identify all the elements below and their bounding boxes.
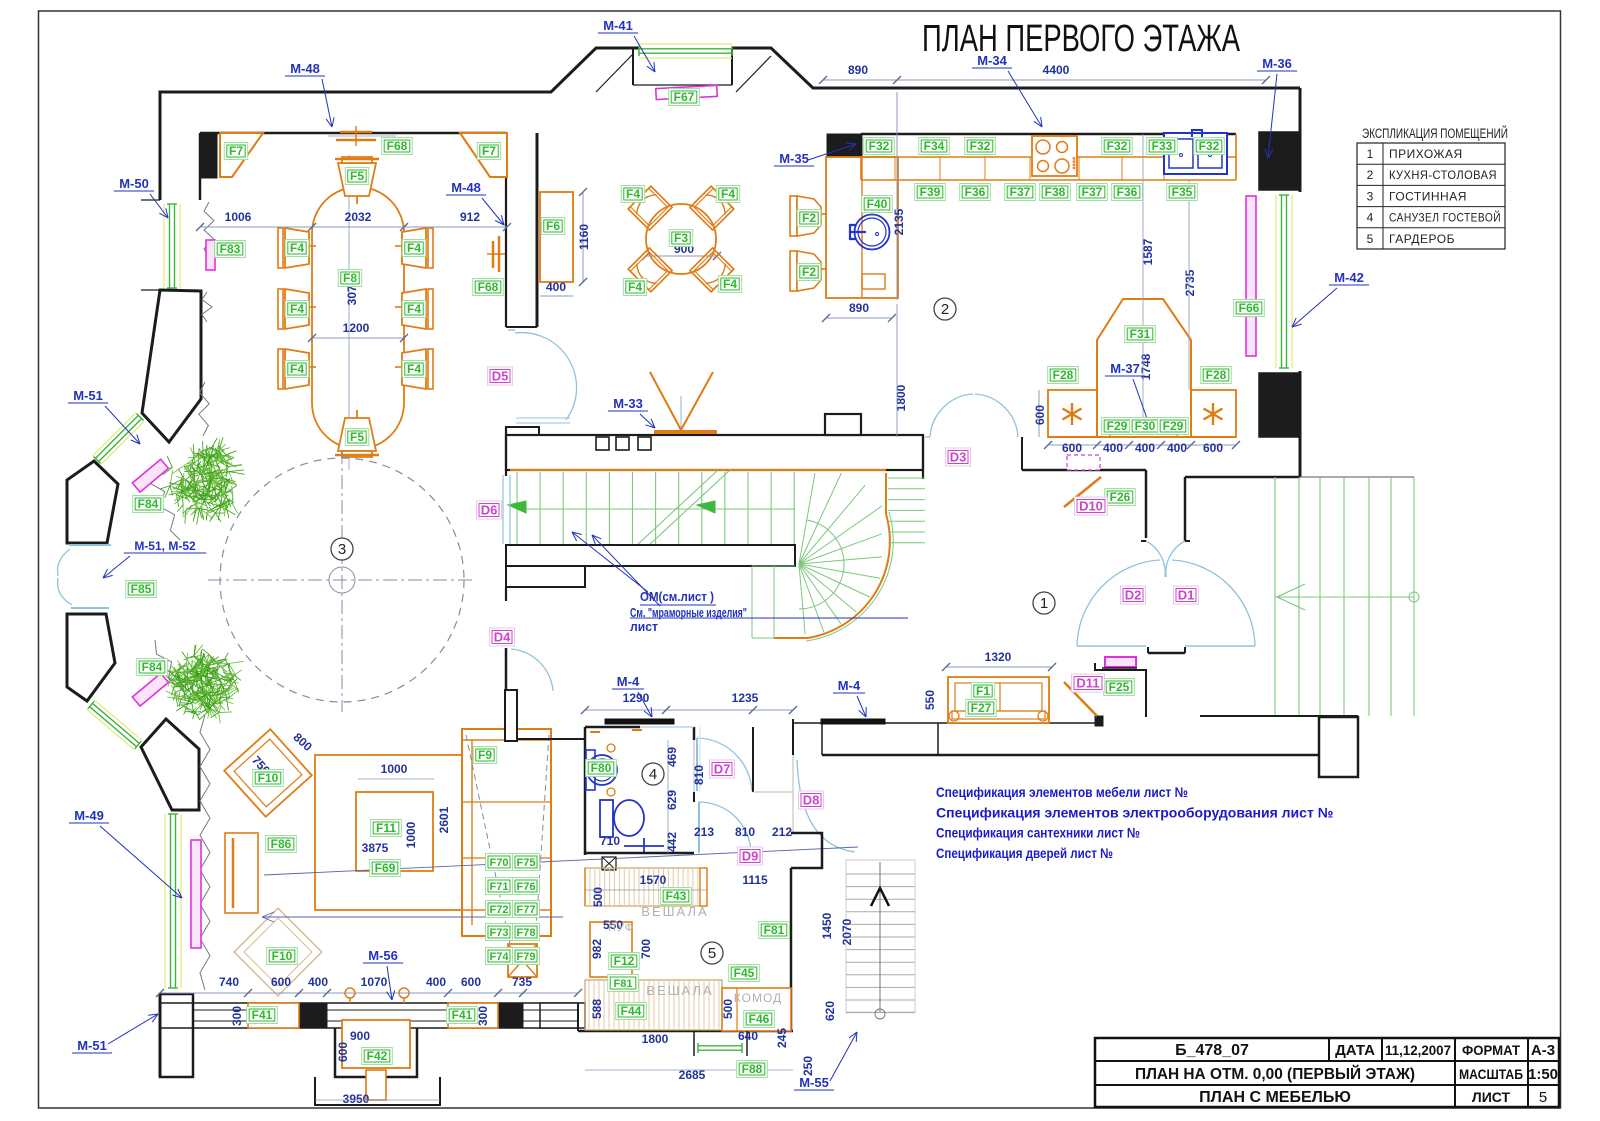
svg-text:ПЛАН НА ОТМ. 0,00 (ПЕРВЫЙ ЭТАЖ: ПЛАН НА ОТМ. 0,00 (ПЕРВЫЙ ЭТАЖ) xyxy=(1135,1064,1415,1083)
svg-text:4400: 4400 xyxy=(1043,63,1070,77)
svg-text:400: 400 xyxy=(308,975,328,989)
svg-text:D6: D6 xyxy=(481,503,498,518)
svg-text:F71: F71 xyxy=(490,881,509,893)
svg-text:F2: F2 xyxy=(802,211,816,225)
svg-text:ПУФ: ПУФ xyxy=(608,922,634,934)
svg-text:F76: F76 xyxy=(517,881,536,893)
svg-text:735: 735 xyxy=(512,975,532,989)
svg-text:F4: F4 xyxy=(290,362,304,376)
svg-text:F32: F32 xyxy=(970,139,991,153)
svg-text:1: 1 xyxy=(1040,595,1048,612)
svg-text:400: 400 xyxy=(546,280,566,294)
svg-text:1115: 1115 xyxy=(742,873,768,887)
svg-text:600: 600 xyxy=(336,1042,350,1062)
svg-text:300: 300 xyxy=(476,1006,490,1026)
svg-text:F32: F32 xyxy=(1107,139,1128,153)
svg-text:Спецификация сантехники лист №: Спецификация сантехники лист № xyxy=(936,825,1140,841)
svg-text:629: 629 xyxy=(665,790,679,810)
svg-text:F4: F4 xyxy=(290,241,304,255)
svg-text:2: 2 xyxy=(941,301,949,318)
svg-text:F73: F73 xyxy=(490,927,509,939)
svg-text:900: 900 xyxy=(350,1029,370,1043)
svg-text:М-4: М-4 xyxy=(838,678,861,693)
svg-text:3950: 3950 xyxy=(343,1092,370,1106)
svg-text:F81: F81 xyxy=(764,923,785,937)
svg-text:2135: 2135 xyxy=(892,208,906,235)
svg-text:М-33: М-33 xyxy=(613,396,643,411)
svg-text:5: 5 xyxy=(1367,232,1374,246)
svg-text:F4: F4 xyxy=(290,302,304,316)
svg-text:400: 400 xyxy=(426,975,446,989)
svg-text:5: 5 xyxy=(708,945,716,962)
svg-text:М-35: М-35 xyxy=(779,151,809,166)
svg-text:700: 700 xyxy=(639,939,653,959)
svg-text:F74: F74 xyxy=(490,951,510,963)
svg-text:М-49: М-49 xyxy=(74,808,104,823)
svg-text:F69: F69 xyxy=(375,861,396,875)
svg-text:600: 600 xyxy=(271,975,291,989)
svg-text:F78: F78 xyxy=(517,927,536,939)
svg-text:М-51: М-51 xyxy=(77,1038,107,1053)
svg-text:2070: 2070 xyxy=(840,918,854,945)
svg-text:F28: F28 xyxy=(1206,368,1227,382)
svg-text:F33: F33 xyxy=(1152,139,1173,153)
svg-text:1070: 1070 xyxy=(361,975,388,989)
svg-text:Спецификация элементов электро: Спецификация элементов электрооборудован… xyxy=(936,804,1333,820)
svg-text:F84: F84 xyxy=(138,497,159,511)
svg-text:F66: F66 xyxy=(1239,301,1260,315)
svg-text:F1: F1 xyxy=(976,684,990,698)
svg-text:F11: F11 xyxy=(376,821,396,835)
svg-text:600: 600 xyxy=(1062,441,1082,455)
svg-text:ДАТА: ДАТА xyxy=(1335,1042,1375,1059)
svg-text:600: 600 xyxy=(461,975,481,989)
svg-text:F25: F25 xyxy=(1109,680,1130,694)
svg-text:442: 442 xyxy=(665,832,679,852)
svg-text:D7: D7 xyxy=(714,762,731,777)
svg-text:2601: 2601 xyxy=(437,806,451,833)
svg-text:F27: F27 xyxy=(971,701,992,715)
svg-text:4: 4 xyxy=(649,766,657,783)
svg-text:600: 600 xyxy=(1203,441,1223,455)
svg-text:F36: F36 xyxy=(1117,185,1138,199)
svg-text:D3: D3 xyxy=(950,450,967,465)
svg-text:М-51, М-52: М-51, М-52 xyxy=(134,539,196,553)
svg-text:F28: F28 xyxy=(1053,368,1074,382)
svg-text:1235: 1235 xyxy=(732,691,759,705)
svg-text:F4: F4 xyxy=(721,187,735,201)
svg-text:1450: 1450 xyxy=(820,912,834,939)
svg-text:1290: 1290 xyxy=(623,691,650,705)
svg-text:2032: 2032 xyxy=(345,210,372,224)
svg-text:1:50: 1:50 xyxy=(1528,1066,1558,1083)
svg-text:F36: F36 xyxy=(965,185,986,199)
svg-text:F37: F37 xyxy=(1082,185,1103,199)
svg-text:F72: F72 xyxy=(490,904,509,916)
svg-text:F42: F42 xyxy=(367,1049,388,1063)
svg-text:F2: F2 xyxy=(802,265,816,279)
svg-text:F34: F34 xyxy=(924,139,945,153)
svg-text:1000: 1000 xyxy=(404,821,418,848)
svg-text:640: 640 xyxy=(738,1029,758,1043)
svg-text:400: 400 xyxy=(1135,441,1155,455)
svg-text:212: 212 xyxy=(772,825,792,839)
svg-text:F77: F77 xyxy=(517,904,536,916)
svg-text:КУХНЯ-СТОЛОВАЯ: КУХНЯ-СТОЛОВАЯ xyxy=(1389,168,1497,182)
svg-text:F26: F26 xyxy=(1110,490,1131,504)
svg-text:F5: F5 xyxy=(350,430,364,444)
svg-text:1320: 1320 xyxy=(985,650,1012,664)
svg-text:М-34: М-34 xyxy=(977,53,1007,68)
svg-text:F75: F75 xyxy=(517,857,536,869)
svg-text:М-48: М-48 xyxy=(451,180,481,195)
svg-text:F29: F29 xyxy=(1107,419,1128,433)
svg-text:1800: 1800 xyxy=(894,384,908,411)
svg-text:М-37: М-37 xyxy=(1110,361,1140,376)
svg-text:F32: F32 xyxy=(1199,139,1220,153)
svg-text:А-3: А-3 xyxy=(1531,1042,1555,1059)
svg-text:F8: F8 xyxy=(343,271,357,285)
svg-text:ГАРДЕРОБ: ГАРДЕРОБ xyxy=(1389,232,1455,246)
svg-text:250: 250 xyxy=(801,1056,815,1076)
svg-text:КОМОД: КОМОД xyxy=(734,991,782,1005)
svg-text:ВЕШАЛА: ВЕШАЛА xyxy=(641,904,708,919)
svg-text:F41: F41 xyxy=(452,1008,473,1022)
svg-text:М-55: М-55 xyxy=(799,1075,829,1090)
svg-text:F46: F46 xyxy=(749,1012,770,1026)
svg-text:ЛИСТ: ЛИСТ xyxy=(1472,1089,1511,1105)
svg-text:F39: F39 xyxy=(920,185,941,199)
svg-text:F3: F3 xyxy=(674,231,688,245)
svg-text:2735: 2735 xyxy=(1183,269,1197,296)
svg-text:D9: D9 xyxy=(742,849,759,864)
svg-text:2685: 2685 xyxy=(679,1068,706,1082)
svg-text:Спецификация элементов мебели: Спецификация элементов мебели лист № xyxy=(936,784,1188,800)
svg-text:F80: F80 xyxy=(591,761,612,775)
svg-text:1: 1 xyxy=(1367,147,1374,161)
svg-text:810: 810 xyxy=(692,765,706,785)
svg-text:F4: F4 xyxy=(628,280,642,294)
svg-text:М-51: М-51 xyxy=(73,388,103,403)
svg-text:810: 810 xyxy=(735,825,755,839)
svg-text:ФОРМАТ: ФОРМАТ xyxy=(1462,1042,1520,1058)
svg-text:ПЛАН С МЕБЕЛЬЮ: ПЛАН С МЕБЕЛЬЮ xyxy=(1199,1089,1351,1106)
svg-text:D4: D4 xyxy=(494,630,511,645)
svg-text:F68: F68 xyxy=(387,139,408,153)
svg-text:1006: 1006 xyxy=(225,210,252,224)
svg-text:588: 588 xyxy=(590,999,604,1019)
svg-text:М-50: М-50 xyxy=(119,176,149,191)
svg-text:11,12,2007: 11,12,2007 xyxy=(1385,1042,1451,1058)
svg-text:F44: F44 xyxy=(621,1004,642,1018)
svg-text:F4: F4 xyxy=(626,187,640,201)
svg-text:F10: F10 xyxy=(258,771,279,785)
svg-text:F43: F43 xyxy=(666,889,687,903)
svg-text:F84: F84 xyxy=(142,660,163,674)
svg-text:F81: F81 xyxy=(614,978,633,990)
svg-text:3: 3 xyxy=(1367,189,1374,203)
svg-text:912: 912 xyxy=(460,210,480,224)
svg-text:1800: 1800 xyxy=(642,1032,669,1046)
svg-text:3: 3 xyxy=(338,541,346,558)
svg-text:F41: F41 xyxy=(252,1008,273,1022)
svg-text:М-36: М-36 xyxy=(1262,56,1292,71)
svg-text:М-42: М-42 xyxy=(1334,270,1364,285)
svg-text:ПРИХОЖАЯ: ПРИХОЖАЯ xyxy=(1389,147,1463,161)
svg-text:469: 469 xyxy=(665,747,679,767)
svg-text:МАСШТАБ: МАСШТАБ xyxy=(1459,1066,1523,1082)
svg-text:ЭКСПЛИКАЦИЯ ПОМЕЩЕНИЙ: ЭКСПЛИКАЦИЯ ПОМЕЩЕНИЙ xyxy=(1362,126,1508,141)
svg-text:300: 300 xyxy=(230,1006,244,1026)
svg-text:М-56: М-56 xyxy=(368,948,398,963)
svg-text:600: 600 xyxy=(1033,405,1047,425)
svg-text:F37: F37 xyxy=(1010,185,1031,199)
svg-text:F7: F7 xyxy=(482,144,496,158)
svg-text:890: 890 xyxy=(848,63,868,77)
svg-text:F4: F4 xyxy=(723,277,737,291)
svg-text:740: 740 xyxy=(219,975,239,989)
svg-text:F5: F5 xyxy=(350,169,364,183)
svg-text:F12: F12 xyxy=(614,954,635,968)
svg-text:F67: F67 xyxy=(674,90,695,104)
svg-text:F7: F7 xyxy=(229,144,243,158)
svg-text:1160: 1160 xyxy=(577,224,591,250)
svg-text:лист: лист xyxy=(630,619,658,634)
svg-text:5: 5 xyxy=(1539,1089,1547,1106)
svg-text:F10: F10 xyxy=(272,949,293,963)
svg-text:F4: F4 xyxy=(407,241,421,255)
svg-text:710: 710 xyxy=(600,834,620,848)
svg-text:F40: F40 xyxy=(867,197,888,211)
svg-text:400: 400 xyxy=(1167,441,1187,455)
svg-text:F35: F35 xyxy=(1172,185,1193,199)
svg-text:F4: F4 xyxy=(407,302,421,316)
svg-text:F85: F85 xyxy=(131,582,152,596)
svg-text:F9: F9 xyxy=(478,748,492,762)
svg-text:1000: 1000 xyxy=(381,762,408,776)
svg-text:D11: D11 xyxy=(1076,676,1099,691)
svg-text:2: 2 xyxy=(1367,168,1374,182)
svg-text:D5: D5 xyxy=(492,369,509,384)
svg-text:890: 890 xyxy=(849,301,869,315)
svg-text:D1: D1 xyxy=(1178,588,1195,603)
svg-text:982: 982 xyxy=(590,939,604,959)
svg-text:М-4: М-4 xyxy=(617,674,640,689)
svg-text:F83: F83 xyxy=(220,242,241,256)
svg-text:F31: F31 xyxy=(1130,327,1151,341)
svg-text:М-41: М-41 xyxy=(603,18,633,33)
svg-text:1570: 1570 xyxy=(640,873,667,887)
svg-text:F6: F6 xyxy=(546,219,560,233)
svg-text:213: 213 xyxy=(694,825,714,839)
svg-text:F45: F45 xyxy=(734,966,755,980)
svg-text:D2: D2 xyxy=(1125,588,1142,603)
svg-text:D10: D10 xyxy=(1079,499,1103,514)
svg-text:F88: F88 xyxy=(742,1062,763,1076)
svg-text:М-48: М-48 xyxy=(290,61,320,76)
svg-text:620: 620 xyxy=(823,1001,837,1021)
svg-text:F30: F30 xyxy=(1135,419,1156,433)
svg-text:ВЕШАЛА: ВЕШАЛА xyxy=(646,983,713,998)
svg-text:F79: F79 xyxy=(517,951,536,963)
svg-text:Спецификация дверей лист №: Спецификация дверей лист № xyxy=(936,845,1113,861)
svg-text:550: 550 xyxy=(923,690,937,710)
svg-text:F86: F86 xyxy=(271,837,292,851)
svg-text:F4: F4 xyxy=(407,362,421,376)
svg-text:400: 400 xyxy=(1103,441,1123,455)
svg-text:САНУЗЕЛ ГОСТЕВОЙ: САНУЗЕЛ ГОСТЕВОЙ xyxy=(1389,210,1501,225)
svg-text:ГОСТИННАЯ: ГОСТИННАЯ xyxy=(1389,189,1467,203)
svg-text:F29: F29 xyxy=(1163,419,1184,433)
svg-text:Б_478_07: Б_478_07 xyxy=(1175,1042,1249,1059)
svg-text:F32: F32 xyxy=(869,139,890,153)
svg-text:F70: F70 xyxy=(490,857,509,869)
svg-text:245: 245 xyxy=(775,1028,789,1048)
svg-text:F38: F38 xyxy=(1045,185,1066,199)
svg-text:1200: 1200 xyxy=(343,321,370,335)
svg-text:ПЛАН ПЕРВОГО ЭТАЖА: ПЛАН ПЕРВОГО ЭТАЖА xyxy=(922,18,1240,60)
svg-text:4: 4 xyxy=(1367,211,1374,225)
svg-text:3875: 3875 xyxy=(362,841,389,855)
svg-text:F68: F68 xyxy=(478,280,499,294)
svg-text:D8: D8 xyxy=(803,793,820,808)
